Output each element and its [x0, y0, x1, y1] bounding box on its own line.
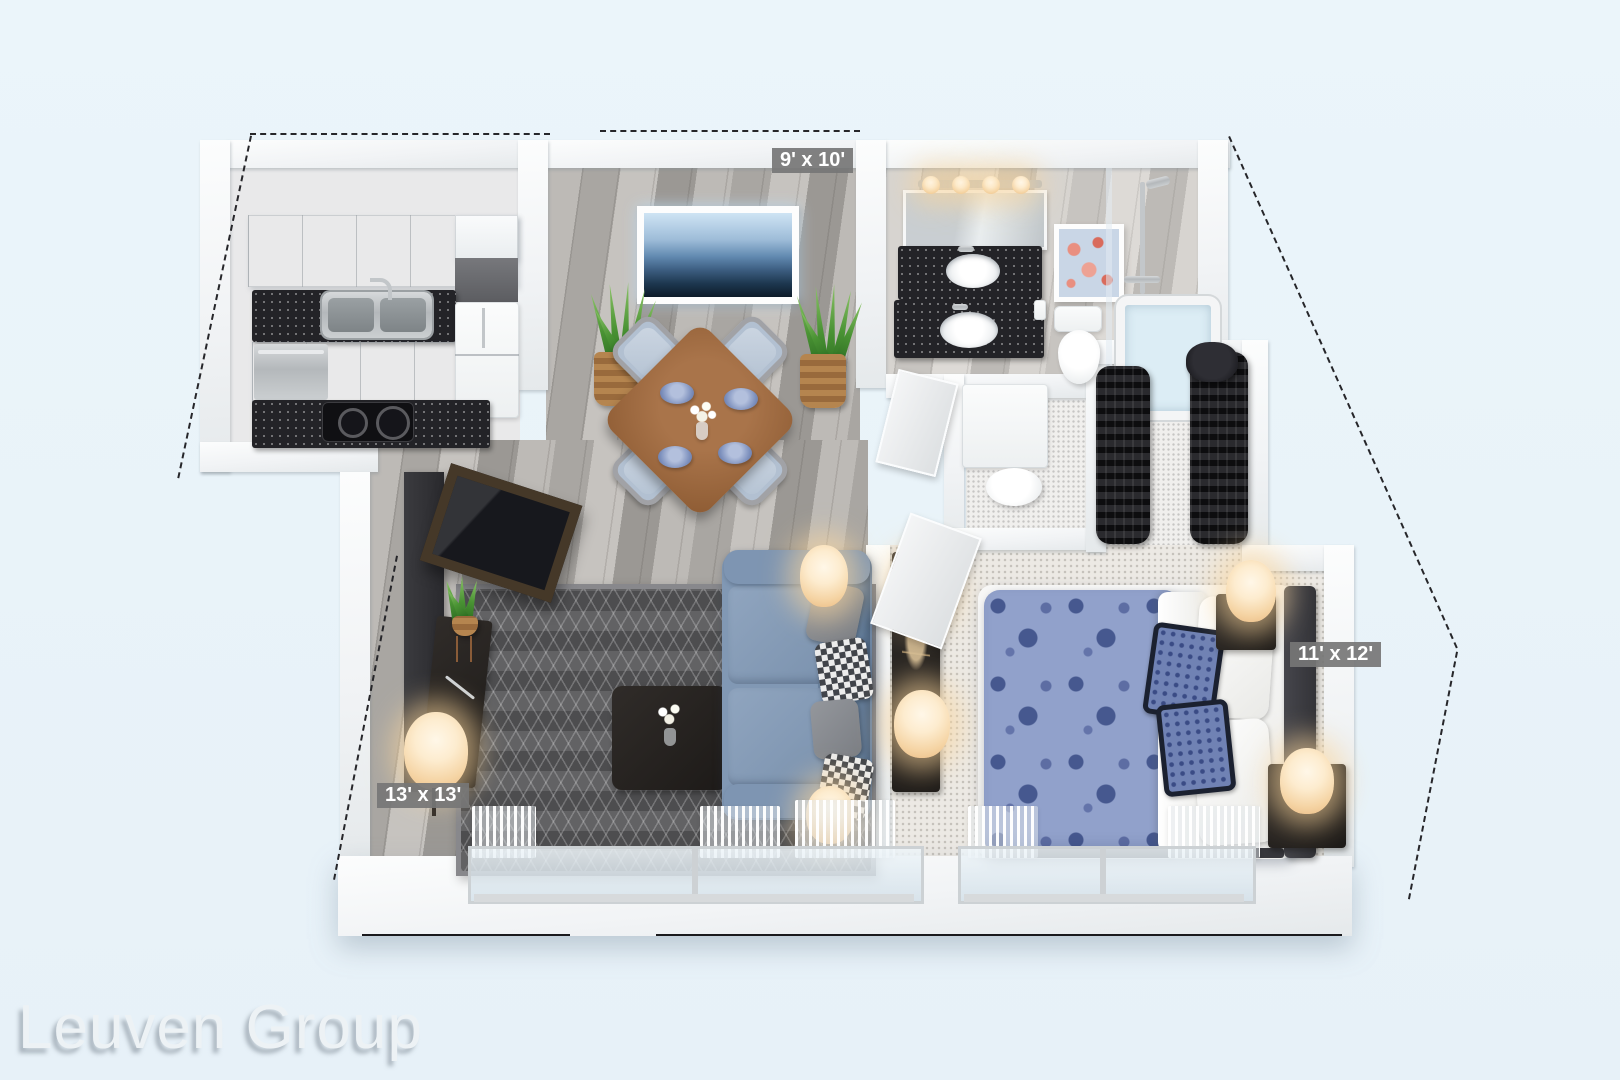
floorplan-screenshot: 9' x 10' 13' x 13' 11' x 12' Leuven Grou…	[0, 0, 1620, 1080]
floor-lamp	[404, 712, 468, 790]
dinner-plate	[718, 442, 752, 464]
table-lamp	[894, 690, 950, 758]
cooktop-burner-small	[338, 408, 368, 438]
toilet-paper-holder	[1034, 300, 1046, 320]
utility-washer	[962, 384, 1048, 468]
toilet-tank	[1054, 306, 1102, 332]
wall-kitchen-dining-divider	[518, 140, 548, 390]
vanity-faucet-lower	[952, 304, 968, 310]
plant-stand-leg	[470, 636, 472, 662]
vanity-light-bulb	[982, 176, 1000, 194]
utility-stool	[986, 468, 1042, 506]
dinner-plate	[724, 388, 758, 410]
kitchen-dishwasher-handle	[258, 350, 324, 354]
window-mullion	[1100, 848, 1106, 896]
vanity-faucet-upper	[958, 246, 974, 252]
cooktop-burner-large	[376, 406, 410, 440]
shower-mixer-valve	[1124, 276, 1160, 283]
shower-glass-partition	[1106, 168, 1112, 374]
vanity-light-bulb	[952, 176, 970, 194]
kitchen-alcove-shelf	[455, 258, 518, 302]
window-sill	[964, 894, 1244, 902]
plant-pot	[452, 616, 478, 636]
sofa-pillow-gray	[810, 698, 863, 760]
wall-left-living	[340, 472, 370, 864]
wall-top-kitchen	[225, 140, 545, 168]
dimension-label-dining: 9' x 10'	[772, 148, 853, 173]
vanity-sink-upper	[946, 254, 1000, 288]
wall-dining-bath-divider	[856, 140, 886, 388]
window-mullion	[692, 848, 698, 896]
cutaway-base-line	[1040, 934, 1342, 936]
bathroom-wall-art-floral	[1054, 224, 1124, 302]
nightstand-lamp	[1280, 748, 1334, 814]
plant-basket-pot	[800, 354, 846, 408]
dining-centerpiece-vase	[696, 422, 708, 440]
floorplan-render: 9' x 10' 13' x 13' 11' x 12'	[0, 0, 1620, 1080]
watermark-logo: Leuven Group	[18, 992, 423, 1063]
bathroom-mirror	[903, 190, 1047, 250]
vanity-sink-lower	[940, 312, 998, 348]
coffee-table-flowers	[652, 700, 688, 730]
coffee-table-vase	[664, 728, 676, 746]
plant-stand-leg	[456, 636, 458, 662]
kitchen-sink-basin-right	[380, 298, 426, 332]
cutaway-outline-top-left	[250, 133, 550, 135]
table-lamp	[800, 545, 848, 607]
closet-hanging-clothes-left	[1096, 366, 1150, 544]
kitchen-faucet	[370, 278, 392, 300]
kitchen-refrigerator-split	[455, 354, 519, 356]
cutaway-outline-right-lower	[1408, 652, 1458, 900]
kitchen-sink-basin-left	[328, 298, 374, 332]
bed-accent-cushion	[1155, 698, 1236, 797]
dining-plant-right	[792, 282, 856, 412]
sofa-pillow-checkered	[813, 636, 874, 705]
window-sill	[474, 894, 914, 902]
vanity-light-bulb	[1012, 176, 1030, 194]
dinner-plate	[658, 446, 692, 468]
living-plant-on-stand	[444, 574, 484, 664]
dimension-label-living: 13' x 13'	[377, 783, 469, 808]
cutaway-base-line	[362, 934, 570, 936]
cutaway-outline-top-mid	[600, 130, 860, 132]
nightstand-lamp	[1226, 560, 1276, 622]
sofa-armrest-top	[724, 550, 870, 584]
closet-shelf-bag	[1186, 342, 1238, 382]
vanity-light-bulb	[922, 176, 940, 194]
kitchen-tall-cabinet	[455, 215, 518, 260]
kitchen-refrigerator-handle	[482, 308, 485, 348]
cutaway-base-line	[656, 934, 1046, 936]
dimension-label-bedroom: 11' x 12'	[1290, 642, 1381, 667]
dining-wall-art-mountains	[637, 206, 799, 304]
wall-top-bathroom	[886, 140, 1230, 168]
